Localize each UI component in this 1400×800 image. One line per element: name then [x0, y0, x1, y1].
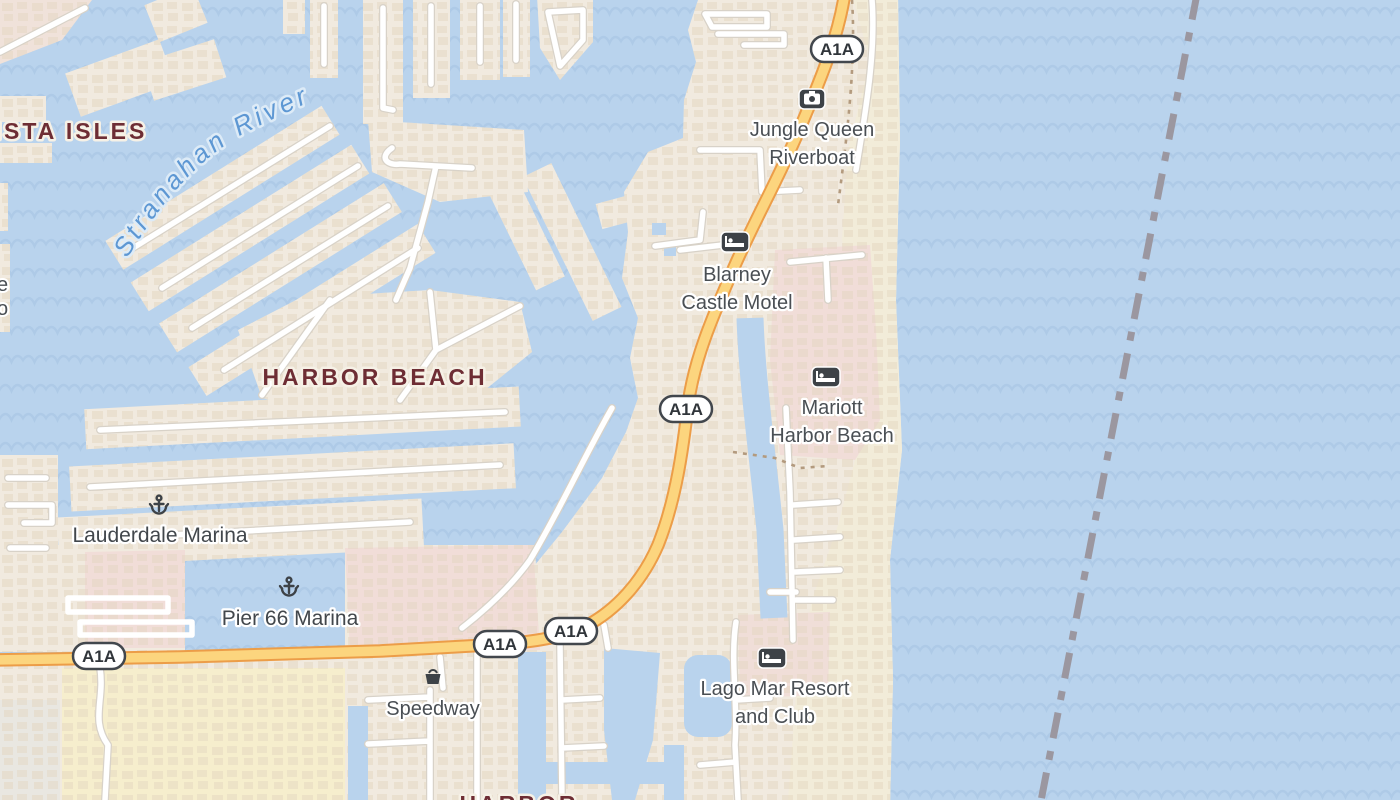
neighborhood-label-harbor-beach: HARBOR BEACH: [262, 364, 487, 390]
route-shield-a1a[interactable]: A1A: [545, 618, 597, 644]
svg-text:Jungle Queen: Jungle Queen: [750, 119, 875, 141]
route-shield-a1a[interactable]: A1A: [660, 396, 712, 422]
svg-text:Castle Motel: Castle Motel: [681, 292, 792, 314]
shield-label: A1A: [820, 40, 854, 59]
neighborhood-label-vista-isles: ISTA ISLES: [0, 118, 147, 144]
bed-icon[interactable]: [758, 648, 786, 668]
shield-label: A1A: [669, 400, 703, 419]
poi-label-lauderdale-marina[interactable]: Lauderdale Marina: [72, 524, 247, 547]
svg-text:Lauderdale Marina: Lauderdale Marina: [72, 524, 247, 547]
route-shield-a1a[interactable]: A1A: [474, 631, 526, 657]
poi-label-speedway[interactable]: Speedway: [386, 698, 479, 720]
svg-text:Lago Mar Resort: Lago Mar Resort: [701, 678, 850, 700]
svg-text:Blarney: Blarney: [703, 264, 771, 286]
canal: [518, 652, 546, 800]
map-svg: A1A A1A A1A A1A A1A: [0, 0, 1400, 800]
svg-text:and Club: and Club: [735, 706, 815, 728]
poi-label-pier-66-marina[interactable]: Pier 66 Marina: [222, 607, 359, 630]
map-canvas[interactable]: A1A A1A A1A A1A A1A: [0, 0, 1400, 800]
label-fragment: e: [0, 274, 8, 296]
camera-icon[interactable]: [799, 89, 825, 109]
svg-text:Riverboat: Riverboat: [769, 147, 855, 169]
label-fragment: o: [0, 298, 8, 320]
shield-label: A1A: [82, 647, 116, 666]
shield-label: A1A: [483, 635, 517, 654]
svg-text:Harbor Beach: Harbor Beach: [770, 425, 893, 447]
shield-label: A1A: [554, 622, 588, 641]
route-shield-a1a[interactable]: A1A: [73, 643, 125, 669]
bed-icon[interactable]: [721, 232, 749, 252]
canal: [348, 706, 368, 800]
canal: [546, 762, 678, 784]
bed-icon[interactable]: [812, 367, 840, 387]
svg-text:Speedway: Speedway: [386, 698, 479, 720]
neighborhood-label-partial: HARBOR: [460, 791, 579, 800]
svg-text:Mariott: Mariott: [801, 397, 863, 419]
svg-text:Pier 66 Marina: Pier 66 Marina: [222, 607, 359, 630]
route-shield-a1a[interactable]: A1A: [811, 36, 863, 62]
